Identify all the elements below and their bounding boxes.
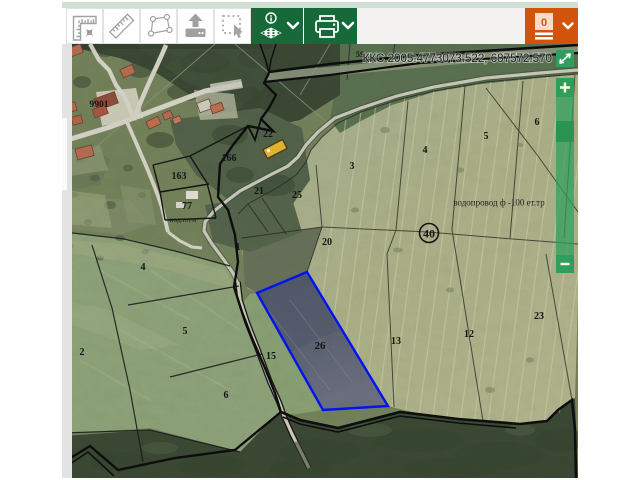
svg-text:1: 1 (236, 242, 241, 253)
svg-text:20: 20 (322, 237, 332, 248)
svg-text:22: 22 (263, 129, 273, 140)
svg-text:9901: 9901 (90, 100, 109, 110)
svg-text:4: 4 (423, 145, 428, 156)
svg-text:166: 166 (222, 153, 237, 164)
svg-text:5: 5 (484, 131, 489, 142)
svg-text:12: 12 (464, 329, 474, 340)
svg-text:163: 163 (172, 171, 187, 182)
svg-text:13: 13 (391, 336, 401, 347)
svg-text:водопровод ф -100 ет.тр: водопровод ф -100 ет.тр (453, 198, 545, 208)
svg-text:40: 40 (423, 227, 435, 241)
svg-text:ККС 2005:4773073.522, 687572.5: ККС 2005:4773073.522, 687572.570 (363, 52, 552, 65)
svg-text:21: 21 (254, 186, 264, 197)
svg-text:4: 4 (141, 262, 146, 273)
svg-text:2: 2 (80, 347, 85, 358)
svg-text:23: 23 (534, 311, 544, 322)
svg-text:6: 6 (224, 390, 229, 401)
svg-text:77: 77 (182, 201, 192, 212)
svg-text:подлоем: подлоем (169, 215, 196, 224)
svg-text:5: 5 (183, 326, 188, 337)
svg-text:26: 26 (315, 340, 327, 352)
svg-text:0: 0 (541, 17, 547, 29)
svg-text:6: 6 (535, 117, 540, 128)
svg-text:25: 25 (292, 190, 302, 201)
svg-text:3: 3 (350, 161, 355, 172)
svg-text:15: 15 (266, 351, 276, 362)
